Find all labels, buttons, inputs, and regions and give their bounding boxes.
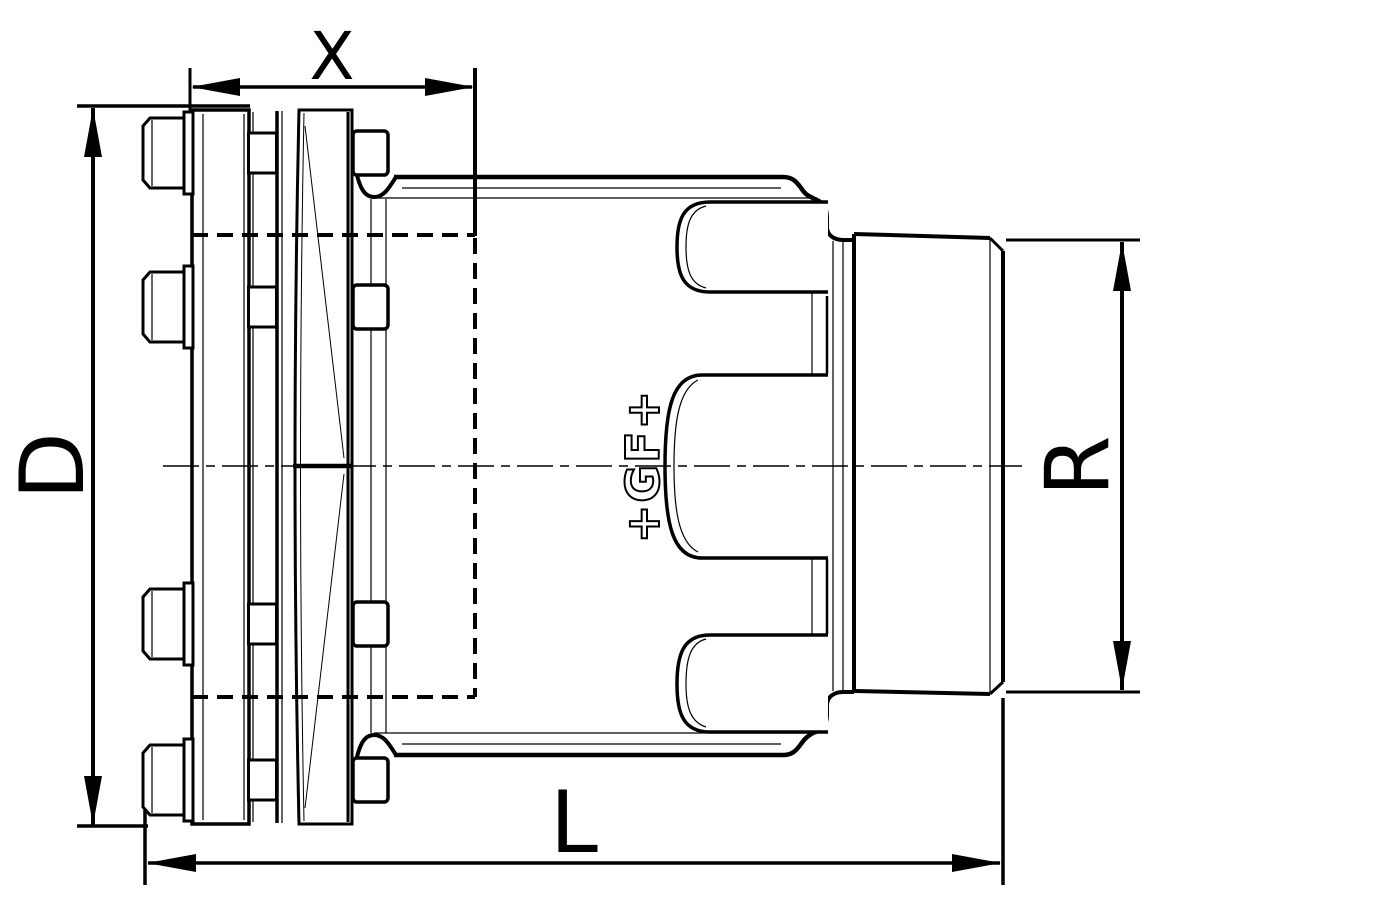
dimension-label-l: L <box>550 773 598 873</box>
dimension-label-r: R <box>1026 435 1129 496</box>
clamp-ring <box>293 110 352 824</box>
spigot <box>854 234 1003 694</box>
dimension-r: R <box>1006 240 1140 692</box>
flange-plate <box>192 110 249 824</box>
inner-sleeve-lines <box>253 111 282 823</box>
dimension-label-x: X <box>309 18 354 95</box>
rib-bottom <box>677 635 828 732</box>
technical-drawing: X D R L +GF+ <box>0 0 1400 900</box>
drawing-canvas: X D R L +GF+ <box>0 0 1400 900</box>
dimension-label-d: D <box>1 432 104 500</box>
rib-top <box>677 202 828 292</box>
